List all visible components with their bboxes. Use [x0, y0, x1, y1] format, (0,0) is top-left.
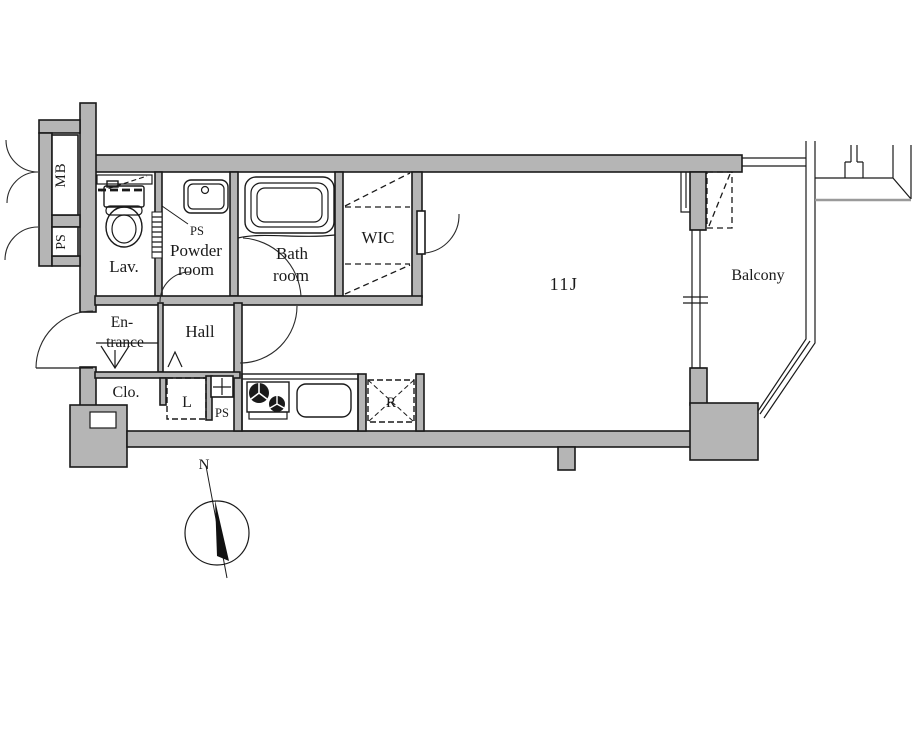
wall-hall-kitchen	[234, 303, 242, 431]
label-wic: WIC	[361, 228, 394, 247]
label-main-room: 11J	[550, 274, 579, 294]
washbasin-icon	[184, 180, 228, 213]
wall-kitchen-fridge	[358, 374, 366, 431]
label-hall: Hall	[185, 322, 215, 341]
label-bathroom-2: room	[273, 266, 309, 285]
ps-hatch-shaft	[152, 212, 162, 258]
label-entrance-1: En-	[111, 314, 133, 331]
mb-door-upper-arc	[6, 140, 38, 172]
compass-north-label: N	[199, 457, 210, 473]
label-powder-room-1: Powder	[170, 241, 222, 260]
lav-shelf	[97, 175, 152, 184]
compass-needle-fill	[215, 500, 229, 561]
floorplan-page: N MB PS Lav. Powder room PS Bath room WI…	[0, 0, 921, 731]
balcony-window	[683, 230, 708, 368]
wall-corridor-strip	[39, 133, 52, 266]
label-closet: Clo.	[112, 384, 139, 401]
label-powder-room-2: room	[178, 260, 214, 279]
balcony-partition	[707, 172, 732, 228]
wall-bottom	[127, 431, 693, 447]
label-laundry: L	[182, 394, 192, 411]
label-mb: MB	[53, 162, 69, 187]
wall-block-bottomright	[690, 403, 758, 460]
wall-top	[93, 155, 742, 172]
label-lavatory: Lav.	[109, 257, 139, 276]
label-ps-powder: PS	[190, 224, 204, 238]
wall-clo-laundry	[160, 378, 166, 405]
wall-column-right	[690, 172, 706, 230]
label-refrigerator: R	[386, 395, 396, 411]
wall-mb-ps-divider	[52, 215, 80, 227]
wall-bath-wic	[335, 172, 343, 296]
label-ps-meter: PS	[54, 234, 69, 250]
label-bathroom-1: Bath	[276, 244, 309, 263]
walls	[39, 103, 758, 470]
wall-bottom-protrusion	[558, 447, 575, 470]
kitchen-sink-icon	[297, 384, 351, 417]
wall-wetrooms-bottom	[95, 296, 422, 305]
wall-stub-topleft	[39, 120, 80, 133]
wic-door	[417, 211, 459, 254]
wall-ps-bottom	[52, 256, 80, 266]
wall-left-upper	[80, 103, 96, 312]
entry-door	[36, 311, 93, 368]
ps-kitchen-box	[211, 376, 233, 397]
compass: N	[185, 457, 249, 578]
ps-door-arc	[5, 227, 38, 260]
label-entrance-2: trance	[106, 334, 144, 351]
label-ps-kitchen: PS	[215, 406, 229, 420]
wall-powder-bath	[230, 172, 238, 296]
floorplan-svg: N MB PS Lav. Powder room PS Bath room WI…	[0, 0, 921, 731]
wall-entrance-hall	[158, 303, 163, 372]
wall-left-lower	[80, 367, 96, 407]
wall-notch	[90, 412, 116, 428]
hall-door-arc	[240, 306, 297, 363]
wall-fridge-right	[416, 374, 424, 431]
wall-block-right-upper	[690, 368, 707, 405]
neighbor-outline	[815, 145, 911, 200]
room-inner-face-lines	[681, 172, 690, 212]
bathtub-icon	[238, 177, 335, 238]
label-balcony: Balcony	[731, 267, 784, 284]
stove-icon	[247, 382, 289, 419]
mb-door-lower-arc	[7, 172, 38, 203]
balcony	[681, 141, 911, 418]
